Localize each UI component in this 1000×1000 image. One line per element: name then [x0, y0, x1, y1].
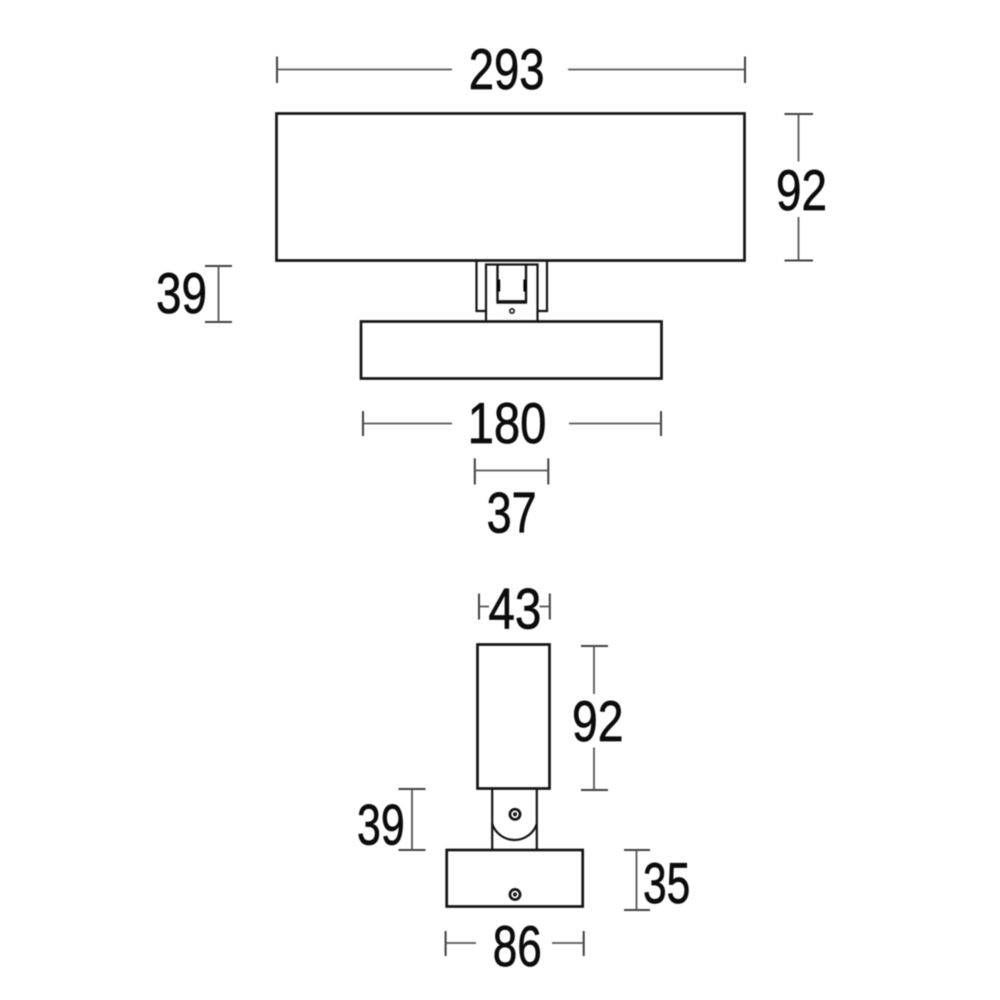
svg-text:35: 35: [643, 852, 690, 916]
svg-text:293: 293: [469, 38, 545, 102]
svg-text:180: 180: [468, 392, 547, 456]
svg-text:92: 92: [776, 159, 827, 223]
svg-text:43: 43: [488, 578, 541, 642]
svg-text:92: 92: [572, 690, 624, 754]
svg-text:86: 86: [493, 915, 542, 979]
svg-text:39: 39: [156, 262, 207, 326]
svg-text:39: 39: [357, 793, 405, 857]
svg-text:37: 37: [487, 482, 537, 546]
